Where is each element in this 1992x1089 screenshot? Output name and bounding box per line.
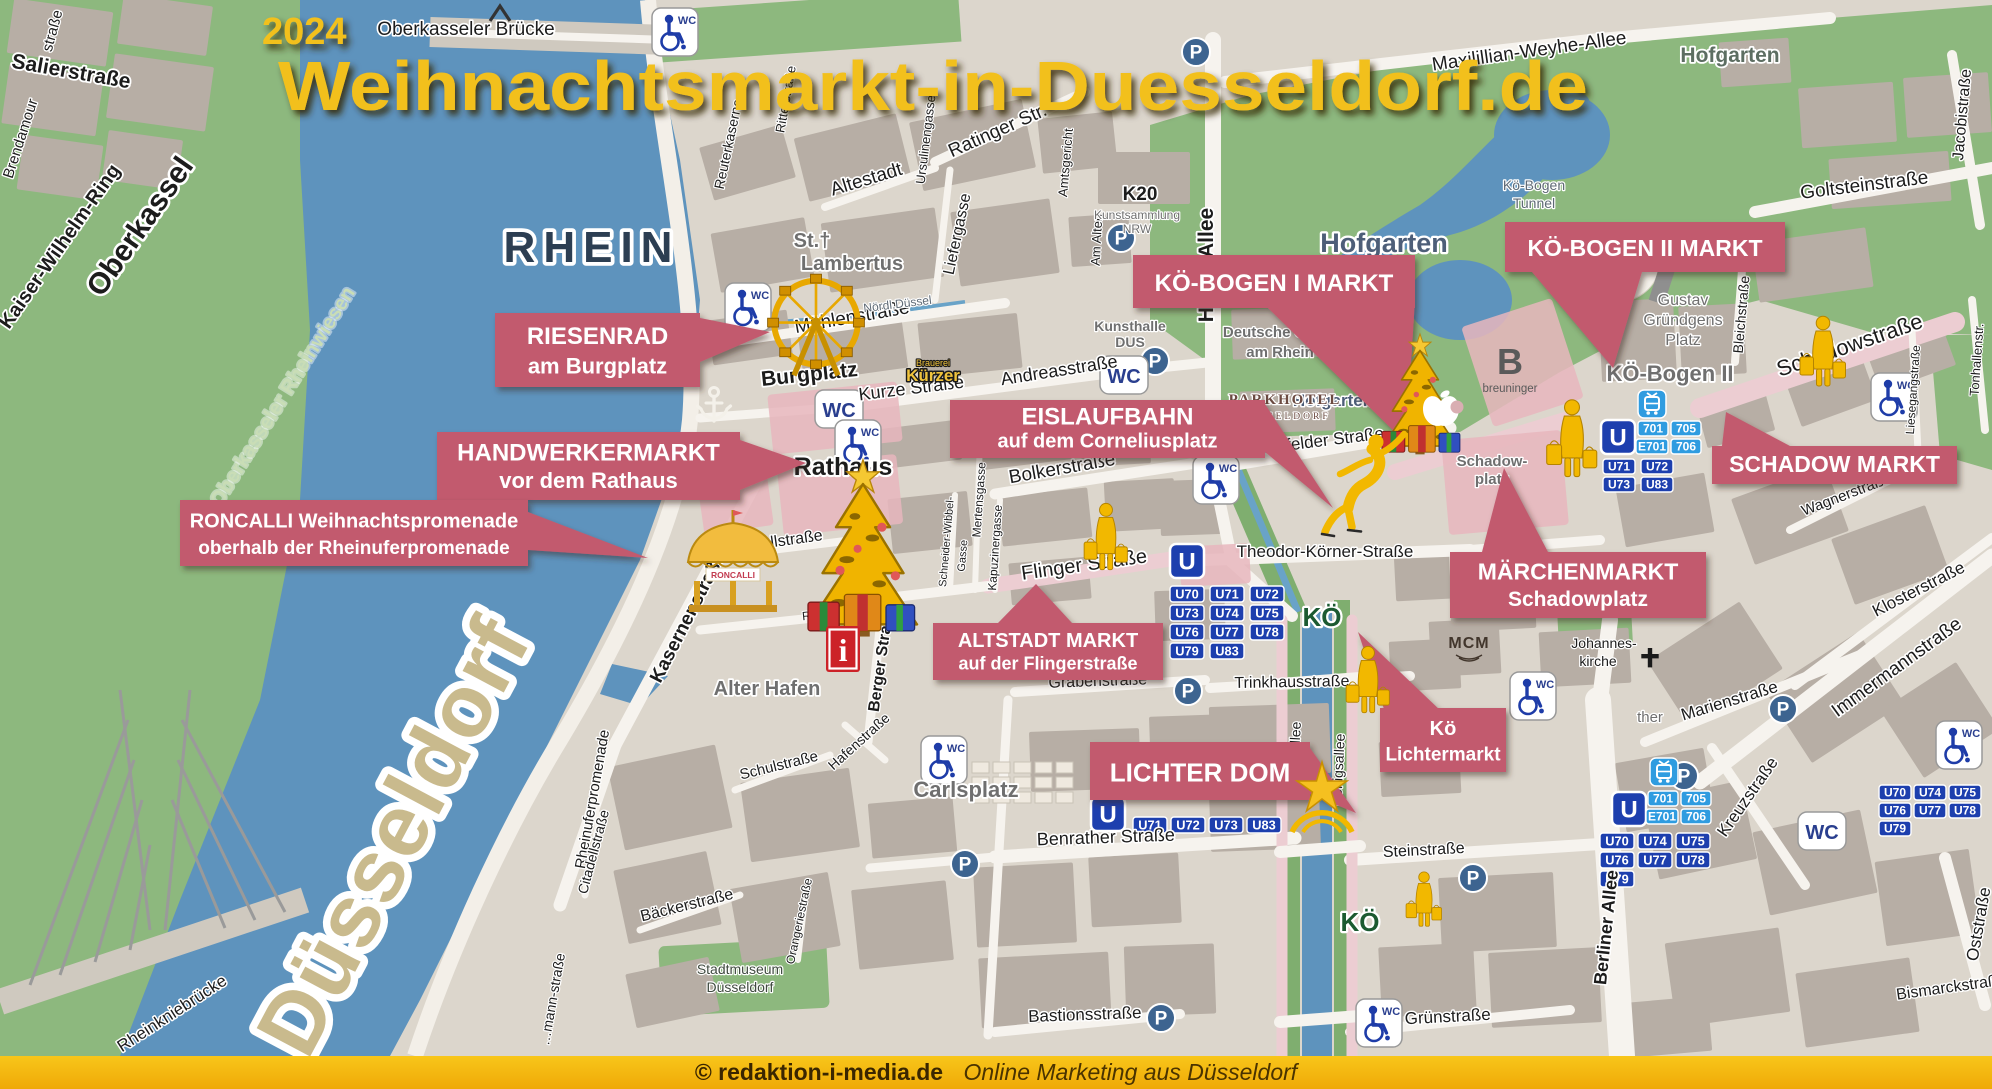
parking-icon xyxy=(1147,1004,1175,1032)
svg-text:U76: U76 xyxy=(1605,852,1628,867)
street-label-kunsthalle: Kunsthalle xyxy=(1094,318,1166,334)
svg-text:706: 706 xyxy=(1686,810,1706,824)
street-label-hofgarten: Hofgarten xyxy=(1320,228,1448,258)
svg-text:U78: U78 xyxy=(1681,852,1704,867)
line-badge-u75: U75 xyxy=(1676,833,1710,849)
building-block xyxy=(1903,72,1992,138)
footer-bar: © redaktion-i-media.de Online Marketing … xyxy=(0,1056,1992,1089)
svg-text:U79: U79 xyxy=(1884,822,1906,836)
market-label-text: Lichtermarkt xyxy=(1385,744,1501,765)
street-label-gründgens: Gründgens xyxy=(1643,312,1722,329)
street-label-nrw: NRW xyxy=(1123,222,1152,236)
street-label-kunstsammlung: Kunstsammlung xyxy=(1094,208,1180,222)
svg-text:U79: U79 xyxy=(1175,643,1198,658)
market-stall xyxy=(1056,777,1073,788)
svg-text:701: 701 xyxy=(1653,792,1673,806)
svg-text:U75: U75 xyxy=(1954,786,1976,800)
street-label-trinkhausstraße: Trinkhausstraße xyxy=(1234,673,1349,692)
footer-copyright: © redaktion-i-media.de xyxy=(695,1059,943,1085)
page-title: Weihnachtsmarkt-in-Duesseldorf.de xyxy=(278,47,1588,125)
street-label-k20: K20 xyxy=(1123,184,1158,205)
street-label-lambertus: Lambertus xyxy=(801,253,903,275)
market-label-text: RONCALLI Weihnachtspromenade xyxy=(190,511,519,533)
footer-tagline: Online Marketing aus Düsseldorf xyxy=(964,1059,1300,1085)
street-label-hofgarten: Hofgarten xyxy=(1680,44,1779,67)
parking-icon xyxy=(1769,695,1797,723)
line-badge-u77: U77 xyxy=(1638,852,1672,868)
line-badge-705: 705 xyxy=(1671,421,1701,436)
street-label-kirche: kirche xyxy=(1579,653,1617,669)
line-badge-u73: U73 xyxy=(1170,605,1204,621)
street-label-am-rhein: am Rhein xyxy=(1246,344,1314,361)
line-badge-e701: E701 xyxy=(1636,439,1668,454)
building-block xyxy=(1088,853,1182,928)
svg-text:U74: U74 xyxy=(1919,786,1941,800)
line-badge-701: 701 xyxy=(1638,421,1668,436)
svg-text:U76: U76 xyxy=(1884,804,1906,818)
street-label-alter-hafen: Alter Hafen xyxy=(714,678,821,700)
svg-text:U70: U70 xyxy=(1175,586,1198,601)
map-canvas: WC WC P U xyxy=(0,0,1992,1089)
street-label-johannes: Johannes- xyxy=(1571,635,1637,651)
line-badge-u71: U71 xyxy=(1603,459,1635,474)
christmas-market-map: WC WC P U xyxy=(0,0,1992,1089)
info-icon xyxy=(826,626,860,672)
line-badge-u77: U77 xyxy=(1210,624,1244,640)
svg-text:U73: U73 xyxy=(1214,817,1237,832)
line-badge-u73: U73 xyxy=(1603,477,1635,492)
svg-text:E701: E701 xyxy=(1648,810,1676,824)
svg-text:U73: U73 xyxy=(1175,605,1198,620)
line-badge-u72: U72 xyxy=(1641,459,1673,474)
line-badge-u70: U70 xyxy=(1879,785,1911,800)
line-badge-u70: U70 xyxy=(1600,833,1634,849)
svg-text:U71: U71 xyxy=(1608,460,1630,474)
svg-text:705: 705 xyxy=(1676,422,1696,436)
line-badge-u78: U78 xyxy=(1949,803,1981,818)
street-label-rhein: RHEIN xyxy=(504,223,681,272)
svg-text:U83: U83 xyxy=(1215,643,1238,658)
building-block xyxy=(1438,872,1557,953)
parking-icon xyxy=(1459,864,1487,892)
svg-text:U83: U83 xyxy=(1252,817,1275,832)
svg-text:U76: U76 xyxy=(1175,624,1198,639)
market-label-text: HANDWERKERMARKT xyxy=(457,440,720,467)
line-badge-u75: U75 xyxy=(1250,605,1284,621)
market-label-text: EISLAUFBAHN xyxy=(1022,403,1194,430)
street-label-ther: ther xyxy=(1637,709,1663,726)
svg-text:U72: U72 xyxy=(1176,817,1199,832)
street-label-tunnel: Tunnel xyxy=(1513,195,1555,211)
line-badge-701: 701 xyxy=(1648,791,1678,806)
svg-text:706: 706 xyxy=(1676,440,1696,454)
u-station-icon xyxy=(1612,792,1646,826)
line-badge-u78: U78 xyxy=(1250,624,1284,640)
line-badge-u76: U76 xyxy=(1600,852,1634,868)
market-label-text: KÖ-BOGEN I MARKT xyxy=(1155,270,1394,297)
svg-text:U83: U83 xyxy=(1646,478,1668,492)
line-badge-u71: U71 xyxy=(1210,586,1244,602)
svg-text:U78: U78 xyxy=(1255,624,1278,639)
market-stall xyxy=(1056,762,1073,773)
line-badge-u74: U74 xyxy=(1914,785,1946,800)
svg-text:U77: U77 xyxy=(1919,804,1941,818)
svg-text:U73: U73 xyxy=(1608,478,1630,492)
svg-text:U74: U74 xyxy=(1215,605,1239,620)
building-block xyxy=(973,862,1077,947)
building-block xyxy=(868,796,957,858)
street-label-dus: DUS xyxy=(1115,334,1145,350)
line-badge-u72: U72 xyxy=(1250,586,1284,602)
wc-icon xyxy=(1798,812,1846,850)
building-block xyxy=(851,880,954,969)
street-label-schadow: Schadow- xyxy=(1457,453,1528,470)
street-label-kö-bogen-ii: KÖ-Bogen II xyxy=(1606,361,1733,386)
line-badge-706: 706 xyxy=(1671,439,1701,454)
street-label-carlsplatz: Carlsplatz xyxy=(913,777,1018,802)
market-stall xyxy=(1056,792,1073,803)
svg-text:U72: U72 xyxy=(1646,460,1668,474)
tram-stop-icon xyxy=(1650,758,1678,786)
building-block xyxy=(1798,82,1897,148)
market-label-text: KÖ-BOGEN II MARKT xyxy=(1527,235,1762,261)
svg-text:U78: U78 xyxy=(1954,804,1976,818)
market-label-text: Kö xyxy=(1430,718,1457,740)
building-block xyxy=(106,53,214,131)
svg-text:U70: U70 xyxy=(1605,833,1628,848)
u-station-icon xyxy=(1170,544,1204,578)
parking-icon xyxy=(951,850,979,878)
line-badge-u83: U83 xyxy=(1247,817,1281,833)
market-label-text: auf der Flingerstraße xyxy=(958,654,1137,674)
line-badge-u72: U72 xyxy=(1171,817,1205,833)
market-label-text: MÄRCHENMARKT xyxy=(1478,559,1679,585)
line-badge-706: 706 xyxy=(1681,809,1711,824)
u-station-icon xyxy=(1601,420,1635,454)
road xyxy=(1280,1016,1360,1022)
market-label-text: auf dem Corneliusplatz xyxy=(997,431,1217,453)
market-stall xyxy=(972,762,989,773)
line-badge-u83: U83 xyxy=(1210,643,1244,659)
market-label-text: Schadowplatz xyxy=(1508,588,1648,611)
street-label-kö: KÖ xyxy=(1341,907,1380,937)
street-label-bastionsstraße: Bastionsstraße xyxy=(1028,1003,1142,1026)
market-label-text: oberhalb der Rheinuferpromenade xyxy=(198,538,509,559)
svg-text:E701: E701 xyxy=(1638,440,1666,454)
wheelchair-wc-icon xyxy=(725,283,771,331)
market-label-text: vor dem Rathaus xyxy=(499,468,678,493)
street-label-platz: Platz xyxy=(1665,332,1701,349)
line-badge-u73: U73 xyxy=(1209,817,1243,833)
line-badge-u79: U79 xyxy=(1879,821,1911,836)
svg-text:U75: U75 xyxy=(1681,833,1704,848)
market-stall xyxy=(1035,777,1052,788)
svg-text:U77: U77 xyxy=(1643,852,1666,867)
tram-stop-icon xyxy=(1638,390,1666,418)
line-badge-705: 705 xyxy=(1681,791,1711,806)
svg-text:U70: U70 xyxy=(1884,786,1906,800)
market-stall xyxy=(1035,762,1052,773)
line-badge-u77: U77 xyxy=(1914,803,1946,818)
line-badge-u70: U70 xyxy=(1170,586,1204,602)
wheelchair-wc-icon xyxy=(1356,999,1402,1047)
line-badge-u74: U74 xyxy=(1210,605,1244,621)
street-label-oberkasseler-brücke: Oberkasseler Brücke xyxy=(377,19,554,40)
street-label-kö: KÖ xyxy=(1303,602,1342,632)
wheelchair-wc-icon xyxy=(1193,456,1239,504)
road xyxy=(1280,846,1360,852)
svg-text:U77: U77 xyxy=(1215,624,1238,639)
wheelchair-wc-icon xyxy=(1936,721,1982,769)
footer-credit: © redaktion-i-media.de Online Marketing … xyxy=(695,1059,1300,1085)
street-label-theodor-körner-straße: Theodor-Körner-Straße xyxy=(1237,542,1414,561)
line-badge-u76: U76 xyxy=(1170,624,1204,640)
line-badge-u83: U83 xyxy=(1641,477,1673,492)
market-stall xyxy=(993,762,1010,773)
svg-text:U74: U74 xyxy=(1643,833,1667,848)
svg-text:701: 701 xyxy=(1643,422,1663,436)
line-badge-e701: E701 xyxy=(1646,809,1678,824)
street-label-rathaus: Rathaus xyxy=(794,453,893,481)
line-badge-u74: U74 xyxy=(1638,833,1672,849)
svg-text:705: 705 xyxy=(1686,792,1706,806)
line-badge-u75: U75 xyxy=(1949,785,1981,800)
market-label-text: ALTSTADT MARKT xyxy=(958,630,1138,652)
parking-icon xyxy=(1174,677,1202,705)
market-label-text: SCHADOW MARKT xyxy=(1729,451,1940,477)
line-badge-u79: U79 xyxy=(1170,643,1204,659)
market-label-text: LICHTER DOM xyxy=(1110,757,1291,787)
street-label-kö-bogen: Kö-Bogen xyxy=(1503,177,1565,193)
street-label-stadtmuseum: Stadtmuseum xyxy=(697,961,783,977)
street-label-st: St.† xyxy=(794,230,831,252)
market-stall xyxy=(1035,792,1052,803)
svg-text:U71: U71 xyxy=(1215,586,1238,601)
wheelchair-wc-icon xyxy=(1510,672,1556,720)
line-badge-u78: U78 xyxy=(1676,852,1710,868)
line-badge-u76: U76 xyxy=(1879,803,1911,818)
market-stall xyxy=(1014,762,1031,773)
street-label-düsseldorf: Düsseldorf xyxy=(707,979,774,995)
svg-text:U75: U75 xyxy=(1255,605,1278,620)
street-label-kürzer: Kürzer xyxy=(906,366,960,385)
market-label-text: RIESENRAD xyxy=(527,323,668,350)
street-label-gustav: Gustav xyxy=(1658,292,1709,309)
market-label-text: am Burgplatz xyxy=(528,354,667,379)
svg-text:U72: U72 xyxy=(1255,586,1278,601)
